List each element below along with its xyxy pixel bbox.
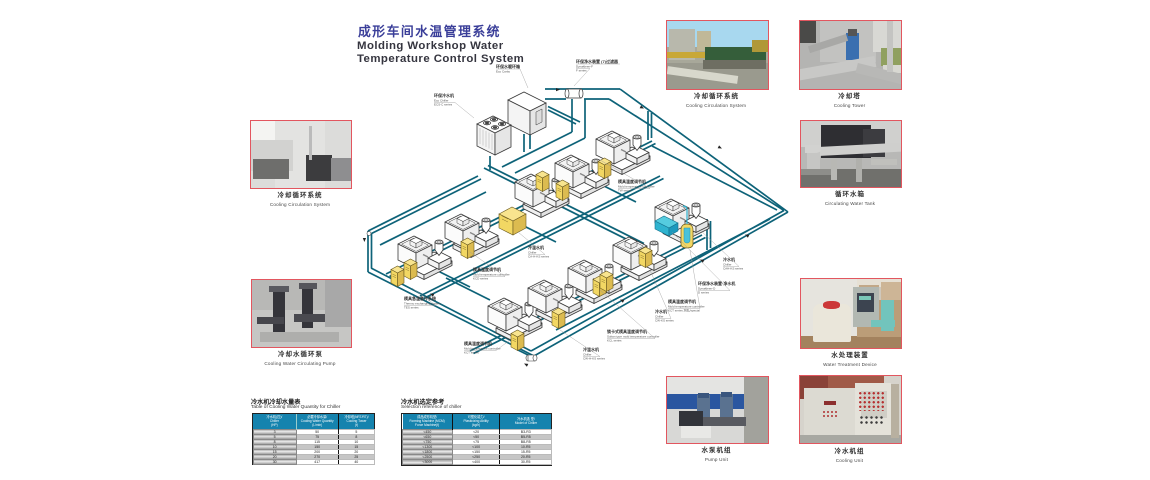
svg-text:模具温度调节机: 模具温度调节机 [668,298,696,304]
svg-text:CAH-KS series: CAH-KS series [723,267,744,271]
svg-text:环保净水装置 (7)过滤器: 环保净水装置 (7)过滤器 [576,58,619,64]
svg-text:锁卡式模具温度调节机: 锁卡式模具温度调节机 [607,328,647,334]
svg-text:冷水机: 冷水机 [655,308,667,314]
svg-text:模具急温急冷系统: 模具急温急冷系统 [404,295,436,301]
svg-text:模具温度调节机: 模具温度调节机 [618,178,646,184]
svg-text:环保冷水机: 环保冷水机 [434,92,454,98]
svg-text:环保净水装置·净水机: 环保净水装置·净水机 [698,280,735,286]
svg-text:模具温度调节机: 模具温度调节机 [473,266,501,272]
svg-text:CW-KS series: CW-KS series [655,319,674,323]
svg-text:环保水暖环箱: 环保水暖环箱 [496,63,520,69]
svg-text:CA-H-KS series: CA-H-KS series [528,255,550,259]
svg-text:F series: F series [576,69,587,73]
svg-text:KCL series: KCL series [607,339,622,343]
svg-text:ECS-C series: ECS-C series [434,103,453,107]
svg-text:KCD series: KCD series [473,277,489,281]
svg-text:模具温度调节机: 模具温度调节机 [464,340,492,346]
svg-text:CW-H-KS series: CW-H-KS series [583,357,605,361]
svg-text:KCT series: KCT series [464,351,479,355]
svg-text:TES series: TES series [404,306,419,310]
svg-text:KCT series 冽孔/special: KCT series 冽孔/special [668,308,700,313]
svg-text:D series: D series [698,291,710,295]
svg-text:Eco Carbo: Eco Carbo [496,70,511,74]
svg-text:TW series: TW series [618,189,632,193]
